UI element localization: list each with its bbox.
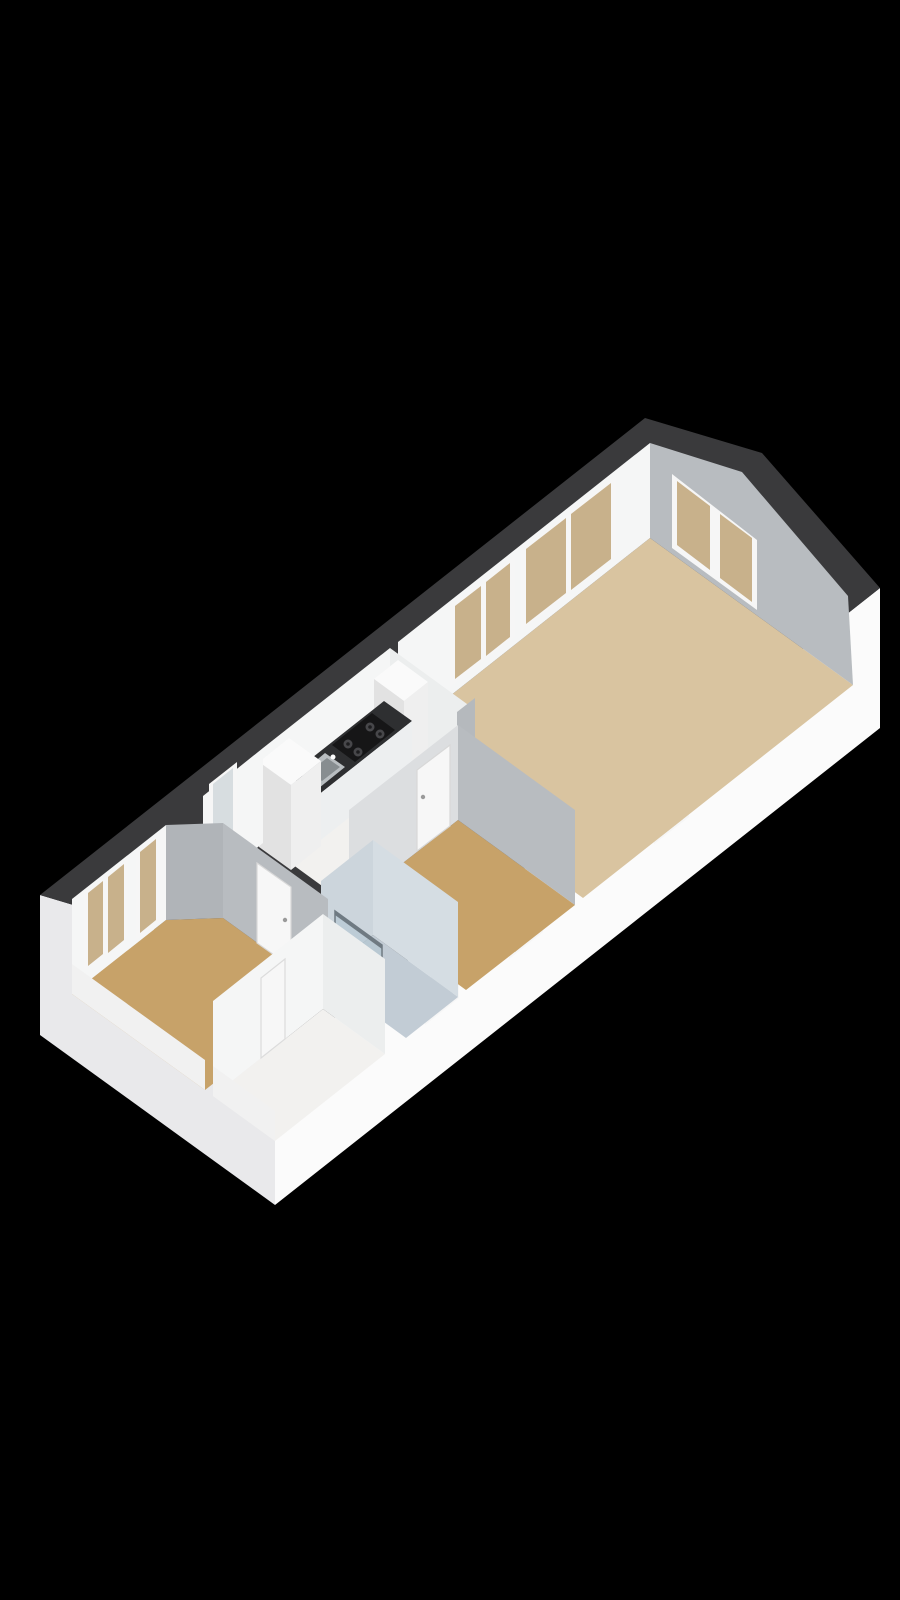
faucet-icon	[331, 755, 336, 760]
window-glass	[140, 839, 156, 933]
burner-cap	[356, 750, 360, 754]
window-glass	[88, 881, 103, 966]
floorplan-3d	[0, 0, 900, 1600]
door-handle-icon	[283, 918, 287, 922]
bedroom-chamfer-wall	[166, 823, 223, 920]
burner-cap	[368, 725, 372, 729]
fridge-cabinet	[259, 738, 321, 870]
window-glass	[108, 864, 124, 953]
burner-cap	[346, 742, 350, 746]
door-handle-icon	[421, 795, 425, 799]
floorplan-canvas	[0, 0, 900, 1600]
burner-cap	[378, 732, 382, 736]
